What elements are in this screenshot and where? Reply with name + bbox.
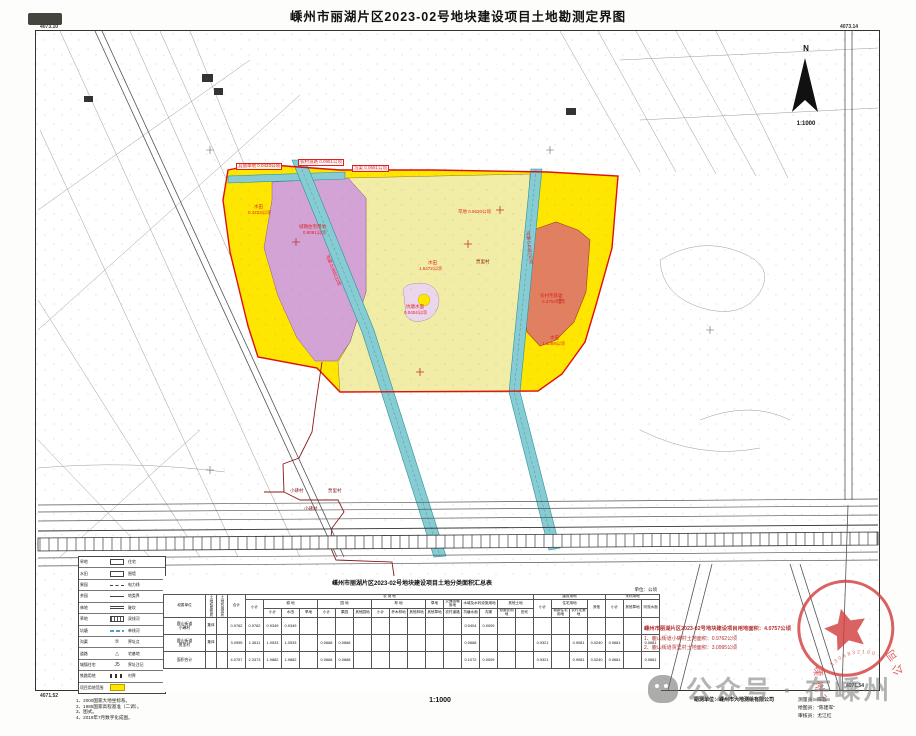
legend-row: 沟渠⑤界址点: [79, 637, 165, 648]
legend-label: 沟渠: [80, 639, 106, 645]
legend-label: 界址注记: [128, 662, 164, 668]
legend-label: 电力线: [128, 582, 164, 588]
survey-map-sheet: 其他草地 0.0423公顷农村道路 0.0951公顷沟渠 0.0681公顷水田0…: [0, 0, 916, 736]
legend-label: 双线河: [128, 616, 164, 622]
crew-line: 审核员：尤江红: [798, 712, 835, 719]
legend-row: 铁路用地村界: [79, 671, 165, 682]
coord-top-left: 4073.10: [40, 24, 58, 30]
legend-label: 项目用地范围: [80, 685, 106, 691]
technical-note-line: 4、2019年7月数字化成图。: [76, 715, 246, 721]
legend-label: 茶园: [80, 593, 106, 599]
legend-label: 界址点: [128, 639, 164, 645]
table-unit: 单位：公顷: [163, 587, 661, 593]
legend-symbol-dbl-icon: [110, 606, 124, 609]
legend-row: 水田围墙: [79, 568, 165, 579]
legend-row: 茶园地类界: [79, 591, 165, 602]
legend-label: 住宅: [128, 559, 164, 565]
legend-label: 城镇住宅: [80, 662, 106, 668]
summary-table: 权属单位土地权属性质土地利用现状合计农 用 地建设用地未利用地小计耕 地园 地林…: [163, 594, 660, 669]
summary-table-block: 嵊州市丽湖片区2023-02号地块建设项目土地分类面积汇总表 单位：公顷 权属单…: [163, 576, 661, 692]
north-scale: 1:1000: [780, 121, 832, 127]
north-label: N: [780, 44, 832, 53]
legend-row: 坑塘单线河: [79, 626, 165, 637]
legend-label: 陡坎: [128, 605, 164, 611]
coord-top-right: 4073.14: [840, 24, 858, 30]
legend-label: 水田: [80, 571, 106, 577]
wechat-icon: [648, 675, 678, 703]
legend-label: 坑塘: [80, 628, 106, 634]
legend-row: 项目用地范围: [79, 683, 165, 693]
legend-label: 林地: [80, 605, 106, 611]
legend-symbol-line-icon: [110, 596, 124, 597]
legend-label: 村界: [128, 673, 164, 679]
legend-label: 宅基地: [128, 651, 164, 657]
legend-row: 城镇住宅J5界址注记: [79, 660, 165, 671]
legend-row: 果园电力线: [79, 580, 165, 591]
technical-notes: 1、2000国家大地坐标系。2、1985国家高程基准（二调）。3、图式。4、20…: [76, 698, 246, 721]
legend-label: 围墙: [128, 571, 164, 577]
legend-symbol-yellow-icon: [110, 684, 125, 691]
legend-symbol-hatch-icon: [110, 616, 124, 622]
legend-row: 道路△宅基地: [79, 648, 165, 659]
watermark-text: 公众号 · 在嵊州: [686, 670, 892, 707]
legend-label: 单线河: [128, 628, 164, 634]
legend-symbol-rail-icon: [110, 674, 124, 678]
legend-symbol-glyph-icon: △: [115, 651, 119, 657]
legend-label: 果园: [80, 582, 106, 588]
legend-symbol-dash-icon: [110, 585, 124, 586]
legend-symbol-glyph-icon: ⑤: [115, 639, 119, 645]
legend-row: 林地陡坎: [79, 603, 165, 614]
legend-label: 铁路用地: [80, 673, 106, 679]
legend-label: 地类界: [128, 593, 164, 599]
legend-label: 草地: [80, 616, 106, 622]
north-arrow: N 1:1000: [780, 44, 832, 128]
legend-label: 旱地: [80, 559, 106, 565]
legend-symbol-glyph-icon: J5: [114, 662, 119, 668]
watermark: 公众号 · 在嵊州: [648, 670, 892, 707]
legend-symbol-wave-icon: [110, 630, 124, 632]
table-title: 嵊州市丽湖片区2023-02号地块建设项目土地分类面积汇总表: [163, 578, 661, 587]
coord-bottom-left: 4071.52: [40, 693, 58, 699]
legend: 旱地住宅水田围墙果园电力线茶园地类界林地陡坎草地双线河坑塘单线河沟渠⑤界址点道路…: [78, 556, 166, 694]
legend-row: 旱地住宅: [79, 557, 165, 568]
legend-label: 道路: [80, 651, 106, 657]
seal-star-icon: [821, 604, 871, 653]
page-title: 嵊州市丽湖片区2023-02号地块建设项目土地勘测定界图: [0, 6, 916, 25]
map-scale: 1:1000: [400, 697, 480, 704]
legend-row: 草地双线河: [79, 614, 165, 625]
legend-symbol-rect-icon: [110, 559, 124, 565]
legend-symbol-rect-icon: [110, 571, 124, 577]
